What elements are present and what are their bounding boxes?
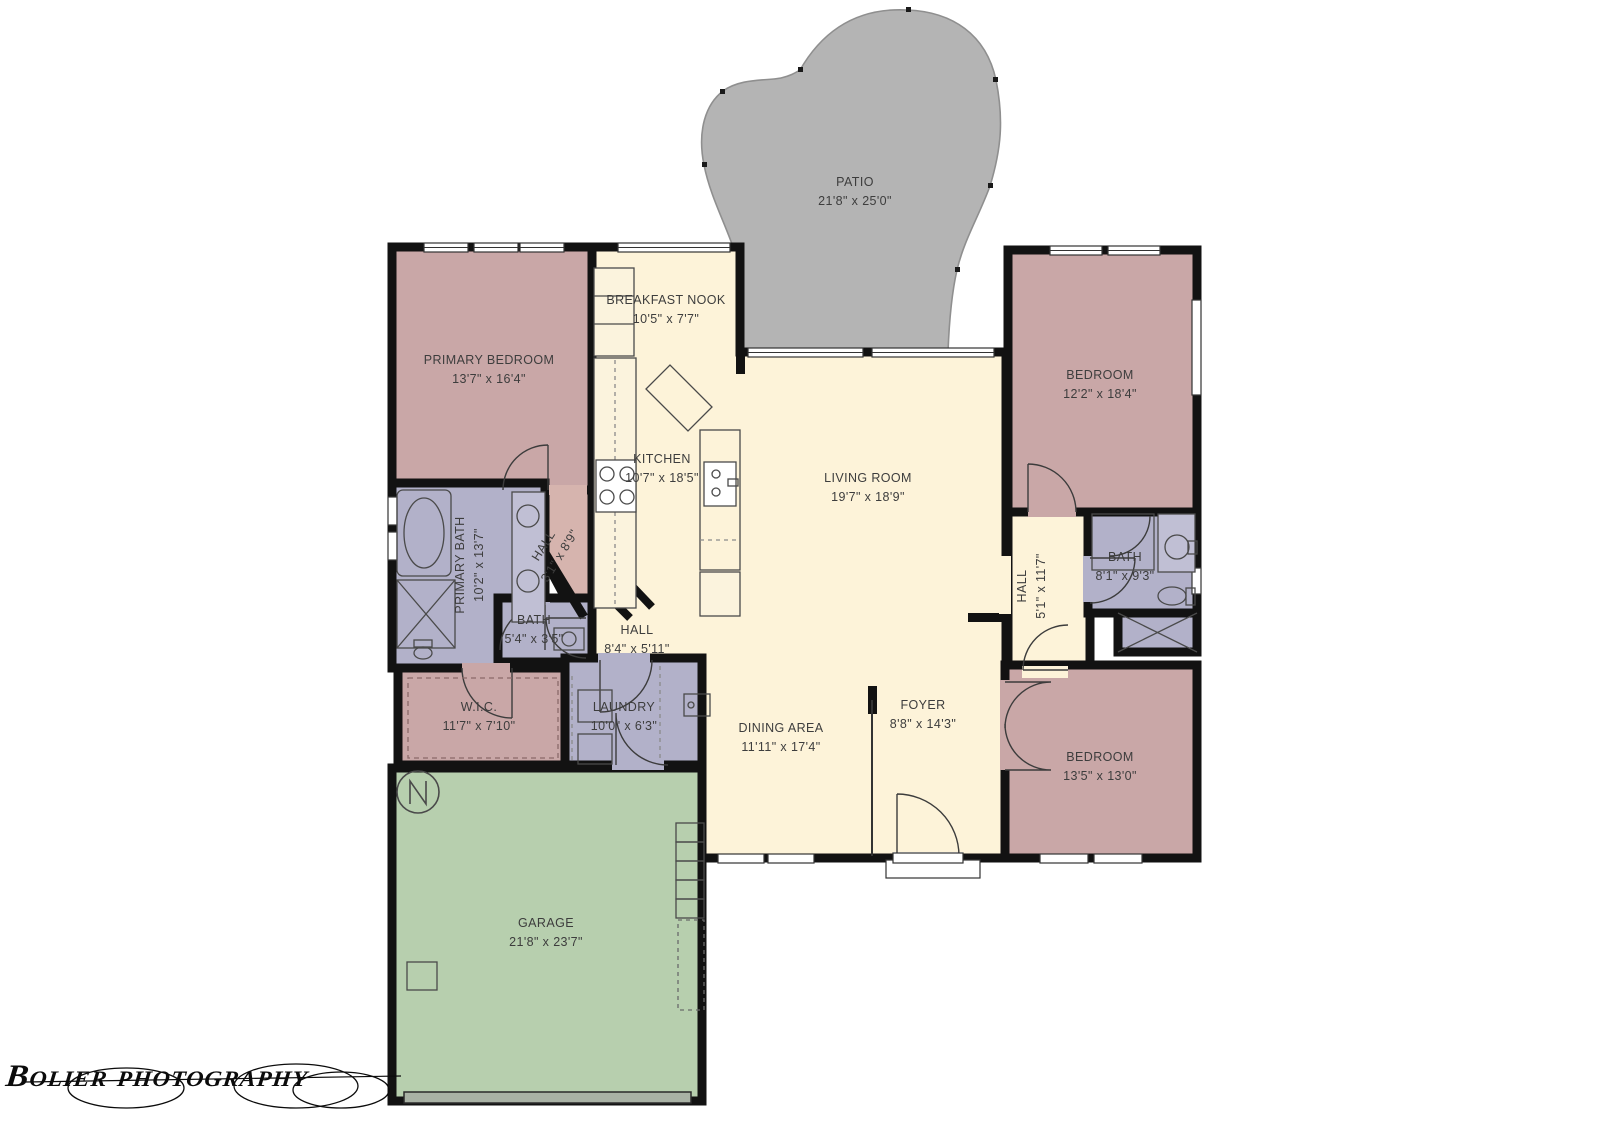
room-bedroom-top-right	[1008, 250, 1197, 512]
room-bedroom-bottom-right	[1005, 665, 1197, 858]
rooms-layer	[392, 247, 1197, 1101]
room-primary-bedroom	[392, 247, 592, 490]
garage-door	[404, 1092, 691, 1103]
room-laundry	[565, 658, 702, 765]
floor-plan-drawing	[0, 0, 1600, 1133]
patio-shape	[702, 7, 1001, 352]
room-hall-right	[1008, 512, 1090, 672]
room-garage	[392, 768, 702, 1101]
photographer-watermark: Bolier photography	[6, 1058, 406, 1118]
floor-plan-canvas: PATIO21'8" x 25'0" PRIMARY BEDROOM13'7" …	[0, 0, 1600, 1133]
watermark-text: Bolier photography	[4, 1060, 408, 1095]
room-wic	[398, 668, 565, 765]
